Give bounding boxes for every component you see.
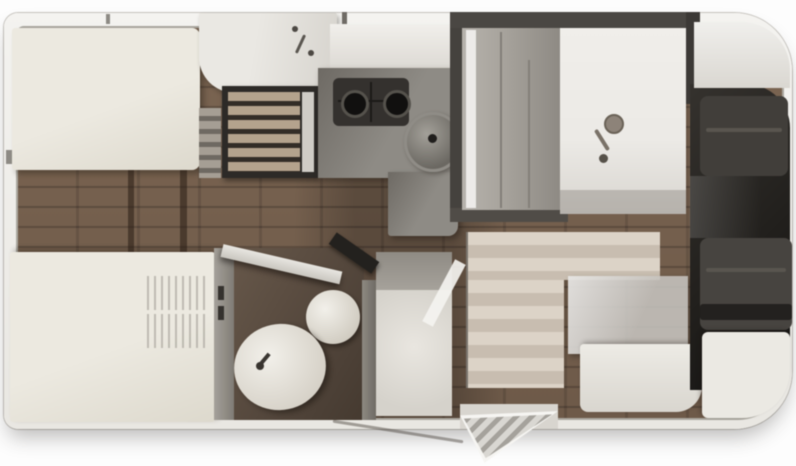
washbasin-vanity: [199, 13, 337, 93]
motorhome-floorplan: [0, 0, 796, 466]
door-hinge: [218, 286, 224, 300]
seat-armrest: [700, 304, 792, 320]
cab-seat: [700, 96, 788, 176]
shower-partition: [362, 280, 376, 420]
door-hinge: [218, 306, 224, 320]
cab-reflection: [690, 176, 792, 238]
washroom-wall: [450, 12, 462, 222]
shower-panel-shade: [560, 190, 686, 214]
toilet-icon: [306, 290, 360, 344]
washroom-wall: [450, 12, 698, 28]
wall-seam: [6, 150, 12, 164]
washroom-cabinet: [462, 28, 560, 210]
entry-mat: [466, 232, 660, 280]
cabinet-slats: [228, 92, 300, 172]
sink-faucet-icon: [428, 134, 437, 143]
hob-burner-icon: [341, 90, 369, 118]
washroom-seam: [528, 60, 530, 208]
dinette-bench: [580, 344, 702, 412]
cabinet-edge: [302, 92, 314, 172]
washroom-door-edge: [466, 30, 476, 208]
seat-seam: [706, 128, 782, 132]
entry-mat: [466, 280, 564, 388]
faucet-icon: [308, 50, 314, 56]
shower-head-icon: [604, 114, 624, 134]
slatted-column: [199, 108, 221, 178]
wall-seam: [342, 12, 347, 24]
rear-steps: [180, 170, 187, 252]
seat-seam: [706, 268, 786, 272]
bathroom-wall: [214, 248, 234, 420]
washroom-wall: [450, 208, 568, 222]
drain-icon: [599, 154, 608, 163]
bed-vent-grid: [142, 314, 208, 348]
screenshot-canvas: [0, 0, 796, 466]
dinette-table: [568, 276, 688, 354]
rear-bed-top: [12, 28, 200, 170]
kitchen-overhead-locker: [330, 24, 458, 70]
rear-steps: [128, 170, 134, 252]
faucet-icon: [292, 26, 298, 32]
entry-step-tread: [461, 413, 556, 460]
bed-vent-grid: [142, 276, 208, 310]
hob-grate: [370, 82, 372, 122]
hob-burner-icon: [383, 90, 411, 118]
kitchen-counter-arm: [388, 172, 458, 236]
washroom-seam: [500, 32, 502, 208]
faucet-icon: [256, 362, 264, 370]
wall-seam: [106, 14, 110, 24]
